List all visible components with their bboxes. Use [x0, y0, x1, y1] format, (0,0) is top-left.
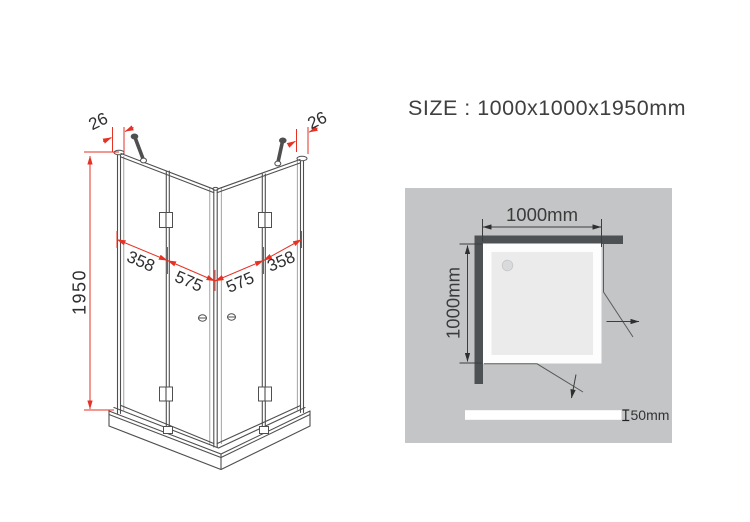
door-mullions [166, 171, 265, 434]
left-door-width-label: 575 [172, 267, 206, 296]
top-rails [121, 154, 300, 193]
left-fixed-width-label: 358 [124, 247, 158, 276]
wall-top [475, 236, 624, 245]
gap-left-label: 26 [86, 109, 111, 134]
dimension-panel-widths: 358 575 575 358 [117, 231, 302, 297]
isometric-view-svg: 1950 26 26 358 [55, 95, 355, 505]
wall-left [475, 236, 484, 385]
door-hinge-top-right [259, 213, 272, 228]
door-hinge-bottom-right [259, 387, 272, 401]
door-hinge-bottom-left [160, 387, 173, 401]
width-label: 1000mm [506, 204, 578, 225]
shower-enclosure-dimension-sheet: 1950 26 26 358 [0, 0, 750, 522]
support-bar-right [275, 138, 287, 166]
dimension-gap-left-26: 26 [86, 109, 134, 154]
glass-edges [121, 156, 301, 444]
dimension-height-1950: 1950 [69, 152, 119, 410]
frame-posts [114, 150, 307, 447]
top-view-svg: 1000mm 1000mm 50mm [400, 185, 680, 450]
height-label: 1950 [69, 269, 89, 315]
tray-height-label: 50mm [631, 407, 670, 423]
right-fixed-width-label: 358 [264, 247, 298, 276]
depth-label: 1000mm [442, 267, 463, 339]
right-door-width-label: 575 [223, 268, 257, 297]
drain [502, 260, 513, 271]
size-title: SIZE : 1000x1000x1950mm [408, 96, 686, 121]
dimension-gap-right-26: 26 [288, 108, 330, 154]
glass-hatching [124, 203, 300, 366]
door-hinge-top-left [160, 213, 173, 228]
